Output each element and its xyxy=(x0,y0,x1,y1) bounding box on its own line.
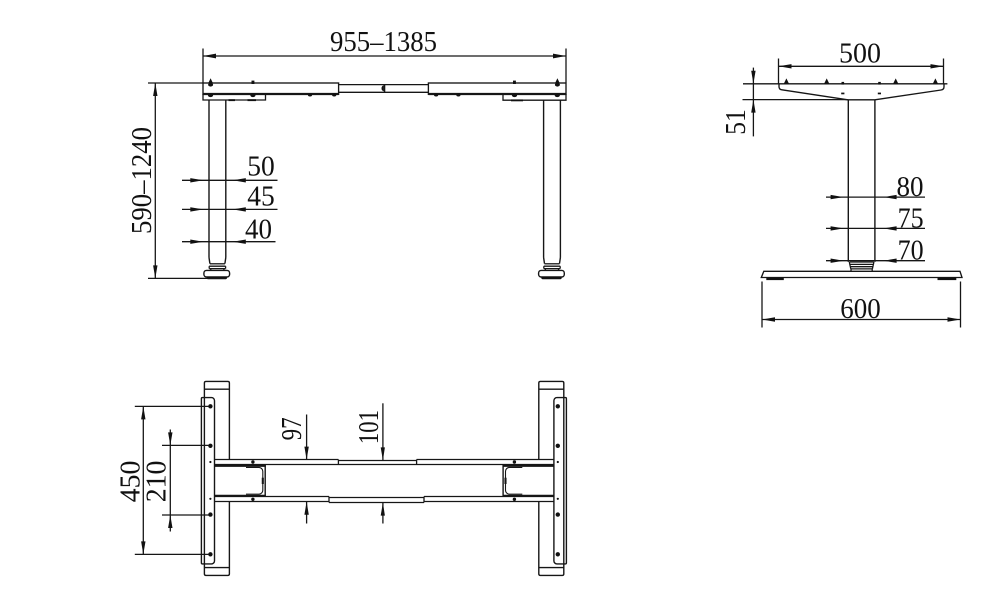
svg-text:590–1240: 590–1240 xyxy=(126,127,158,234)
svg-text:80: 80 xyxy=(897,171,924,203)
svg-text:70: 70 xyxy=(898,234,924,266)
svg-text:75: 75 xyxy=(898,202,924,234)
svg-text:40: 40 xyxy=(245,213,272,245)
svg-text:955–1385: 955–1385 xyxy=(330,26,437,58)
svg-text:500: 500 xyxy=(839,38,881,70)
svg-text:101: 101 xyxy=(353,410,385,444)
svg-text:51: 51 xyxy=(720,109,752,135)
svg-text:50: 50 xyxy=(247,151,275,183)
svg-text:210: 210 xyxy=(140,461,172,503)
svg-text:600: 600 xyxy=(840,293,881,325)
svg-text:45: 45 xyxy=(247,180,275,212)
svg-text:97: 97 xyxy=(276,417,308,440)
